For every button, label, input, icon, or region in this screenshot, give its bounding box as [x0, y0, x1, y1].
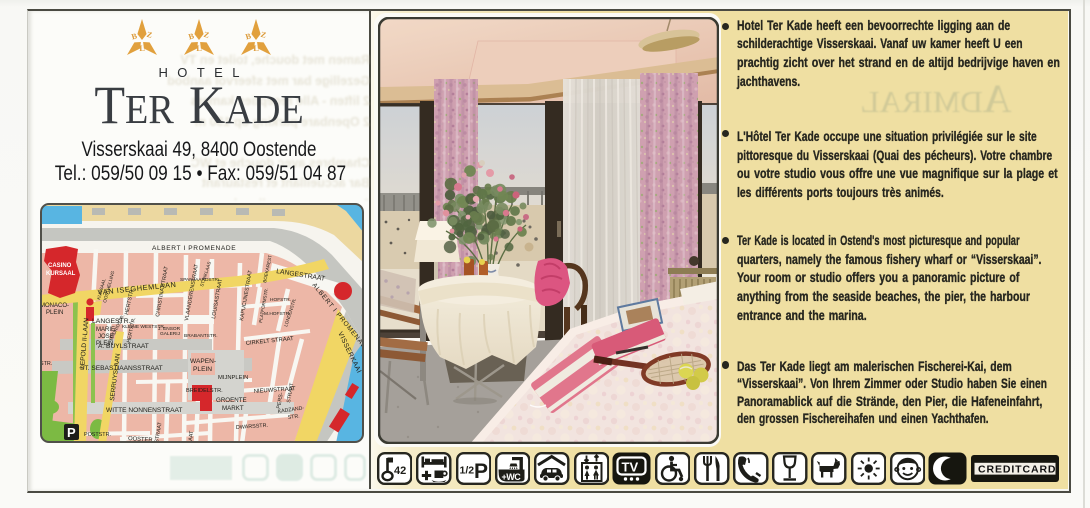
svg-text:CASINO: CASINO [48, 263, 72, 269]
svg-text:KURSAAL: KURSAAL [46, 271, 76, 277]
svg-text:BREIDELSTR.: BREIDELSTR. [186, 388, 223, 394]
svg-text:PLEIN: PLEIN [96, 341, 113, 347]
svg-text:PLEIN: PLEIN [193, 366, 212, 373]
svg-text:MONACO-: MONACO- [40, 303, 69, 309]
svg-text:LANGESTR.: LANGESTR. [92, 318, 131, 325]
svg-text:TV: TV [622, 460, 639, 475]
svg-text:GROENTE: GROENTE [216, 397, 247, 404]
svg-text:GALERIJ: GALERIJ [160, 331, 181, 337]
svg-text:HOFSTR.: HOFSTR. [270, 297, 291, 303]
svg-text:42: 42 [394, 465, 406, 477]
svg-text:ST. SEBASTIAANSSTRAAT: ST. SEBASTIAANSSTRAAT [80, 365, 163, 372]
svg-text:SPANJAARDSTR.: SPANJAARDSTR. [180, 277, 219, 283]
svg-text:P: P [67, 425, 76, 440]
svg-text:WITTE NONNENSTRAAT: WITTE NONNENSTRAAT [106, 407, 182, 414]
svg-text:WAPEN-: WAPEN- [190, 358, 216, 365]
svg-text:MIJNPLEIN: MIJNPLEIN [218, 375, 248, 381]
svg-text:M.HOFSTR.: M.HOFSTR. [264, 311, 290, 317]
svg-text:MARKT: MARKT [222, 405, 244, 412]
svg-text:+WC: +WC [501, 472, 521, 482]
svg-text:ALBERT I PROMENADE: ALBERT I PROMENADE [152, 245, 236, 252]
svg-text:POSTSTR.: POSTSTR. [84, 432, 111, 438]
svg-text:MARIE: MARIE [96, 327, 115, 333]
svg-text:JOSE: JOSE [98, 334, 114, 340]
svg-text:1/2: 1/2 [459, 465, 474, 477]
svg-text:P: P [474, 460, 488, 483]
svg-text:CREDITCARD: CREDITCARD [978, 464, 1056, 476]
svg-text:PLEIN: PLEIN [46, 310, 63, 316]
svg-text:BRABANTSTR.: BRABANTSTR. [184, 333, 218, 339]
svg-text:AAT: AAT [188, 430, 195, 441]
